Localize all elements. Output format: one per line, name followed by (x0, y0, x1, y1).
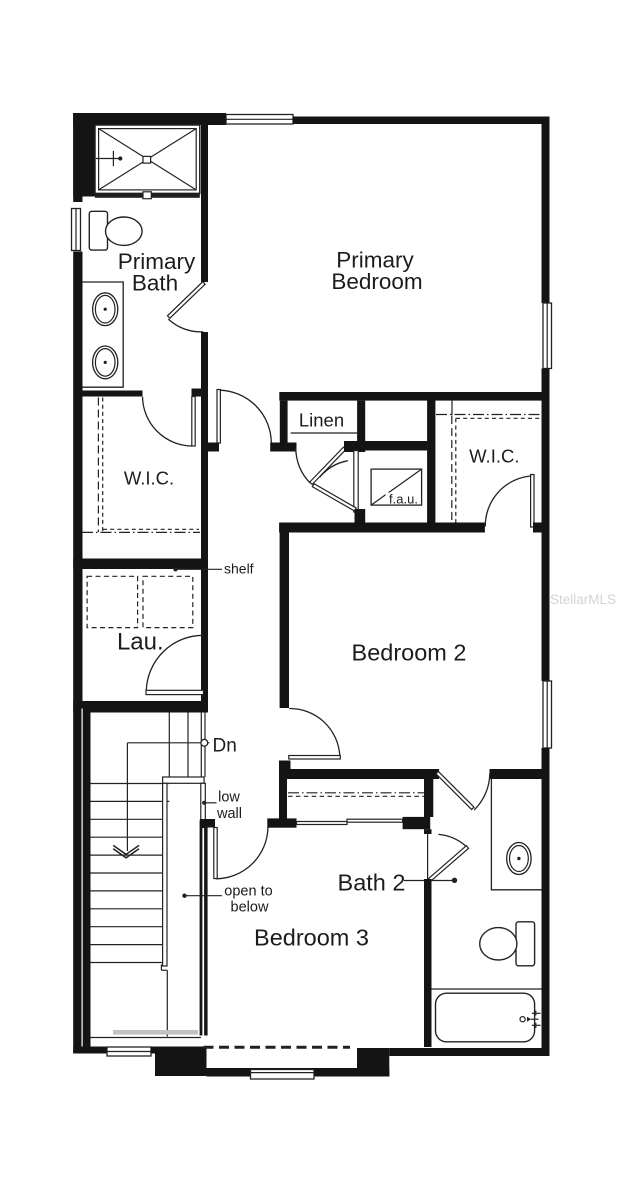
svg-text:Bedroom 2: Bedroom 2 (352, 639, 467, 665)
svg-text:below: below (231, 900, 269, 916)
svg-text:StellarMLS: StellarMLS (550, 592, 616, 607)
svg-text:Bath: Bath (132, 271, 178, 296)
svg-text:Bath 2: Bath 2 (338, 870, 406, 896)
svg-text:W.I.C.: W.I.C. (124, 468, 174, 489)
svg-text:wall: wall (216, 806, 242, 822)
svg-text:Dn: Dn (213, 736, 237, 757)
svg-text:open to: open to (224, 884, 272, 900)
svg-text:Linen: Linen (299, 410, 344, 431)
svg-text:shelf: shelf (224, 561, 254, 577)
svg-text:Bedroom 3: Bedroom 3 (254, 925, 369, 951)
svg-text:Lau.: Lau. (117, 629, 164, 656)
svg-text:W.I.C.: W.I.C. (469, 446, 519, 467)
svg-text:low: low (218, 790, 240, 806)
svg-text:Bedroom: Bedroom (331, 269, 422, 294)
svg-text:f.a.u.: f.a.u. (389, 492, 418, 507)
